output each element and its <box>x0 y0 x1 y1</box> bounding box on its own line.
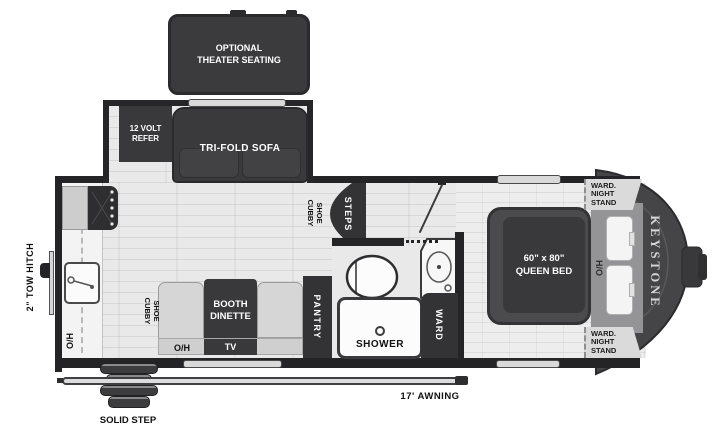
tv-label: TV <box>225 342 237 352</box>
dinette-shoe-cubby-label: SHOE CUBBY <box>138 284 164 338</box>
kitchen-overhead-label: O/H <box>62 326 78 356</box>
booth-dinette-label: BOOTH DINETTE <box>206 299 256 323</box>
booth-dinette-table: BOOTH DINETTE <box>204 279 257 342</box>
tv-unit: TV <box>204 339 257 355</box>
shower-label: SHOWER <box>356 339 404 350</box>
ward-label: WARD <box>430 297 448 353</box>
bath-sink-drain <box>437 265 441 269</box>
awning-label: 17' AWNING <box>380 390 480 402</box>
entry-door-swing <box>420 185 442 232</box>
kitchen-faucet-base <box>68 277 74 283</box>
awning-right-end <box>455 376 468 385</box>
awning-bar <box>62 377 462 385</box>
bed-size-label: 60" x 80" <box>524 253 565 264</box>
entry-shoe-cubby-label: SHOE CUBBY <box>301 183 327 243</box>
awning-left-end <box>57 378 63 383</box>
kitchen-faucet-head <box>90 285 94 289</box>
ward-night-stand-bottom: WARD. NIGHT STAND <box>584 327 642 358</box>
floorplan-canvas: 12 VOLT REFER TRI-FOLD SOFA OPTIONAL THE… <box>0 0 720 437</box>
pantry-label: PANTRY <box>307 279 327 355</box>
front-wardrobe-door-bottom <box>606 265 633 315</box>
keystone-brand-label: KEYSTONE <box>645 177 665 347</box>
tow-hitch-label: 2" TOW HITCH <box>19 222 41 332</box>
ward-night-stand-top: WARD. NIGHT STAND <box>584 179 642 210</box>
dinette-bench-right <box>257 282 303 338</box>
solid-step-label: SOLID STEP <box>88 414 168 426</box>
entry-door-hinge <box>438 177 446 185</box>
stove-burner-dots <box>110 190 113 225</box>
dinette-overhead-label: O/H <box>160 341 204 355</box>
bath-pocket-door-dashes <box>406 240 438 243</box>
shower-drain-icon <box>375 326 385 336</box>
solid-step-tread-4 <box>108 396 150 408</box>
ward-night-stand-bottom-label: WARD. NIGHT STAND <box>586 330 633 356</box>
toilet <box>347 256 397 298</box>
kitchen-faucet-arm <box>74 281 92 286</box>
front-wardrobe-door-top <box>606 216 633 261</box>
ward-night-stand-top-label: WARD. NIGHT STAND <box>586 182 633 208</box>
steps-label: STEPS <box>338 184 358 244</box>
rear-hitch-bar <box>49 251 54 315</box>
dinette-bench-left <box>158 282 204 340</box>
solid-step-tread-1 <box>100 363 158 374</box>
shower: SHOWER <box>337 297 423 359</box>
solid-step-tread-3 <box>100 385 158 396</box>
bed-type-label: QUEEN BED <box>516 266 572 277</box>
queen-bed: 60" x 80" QUEEN BED <box>503 217 585 313</box>
hamper-overhead-label: H/O <box>591 253 607 283</box>
rear-hitch-receiver <box>40 263 50 278</box>
